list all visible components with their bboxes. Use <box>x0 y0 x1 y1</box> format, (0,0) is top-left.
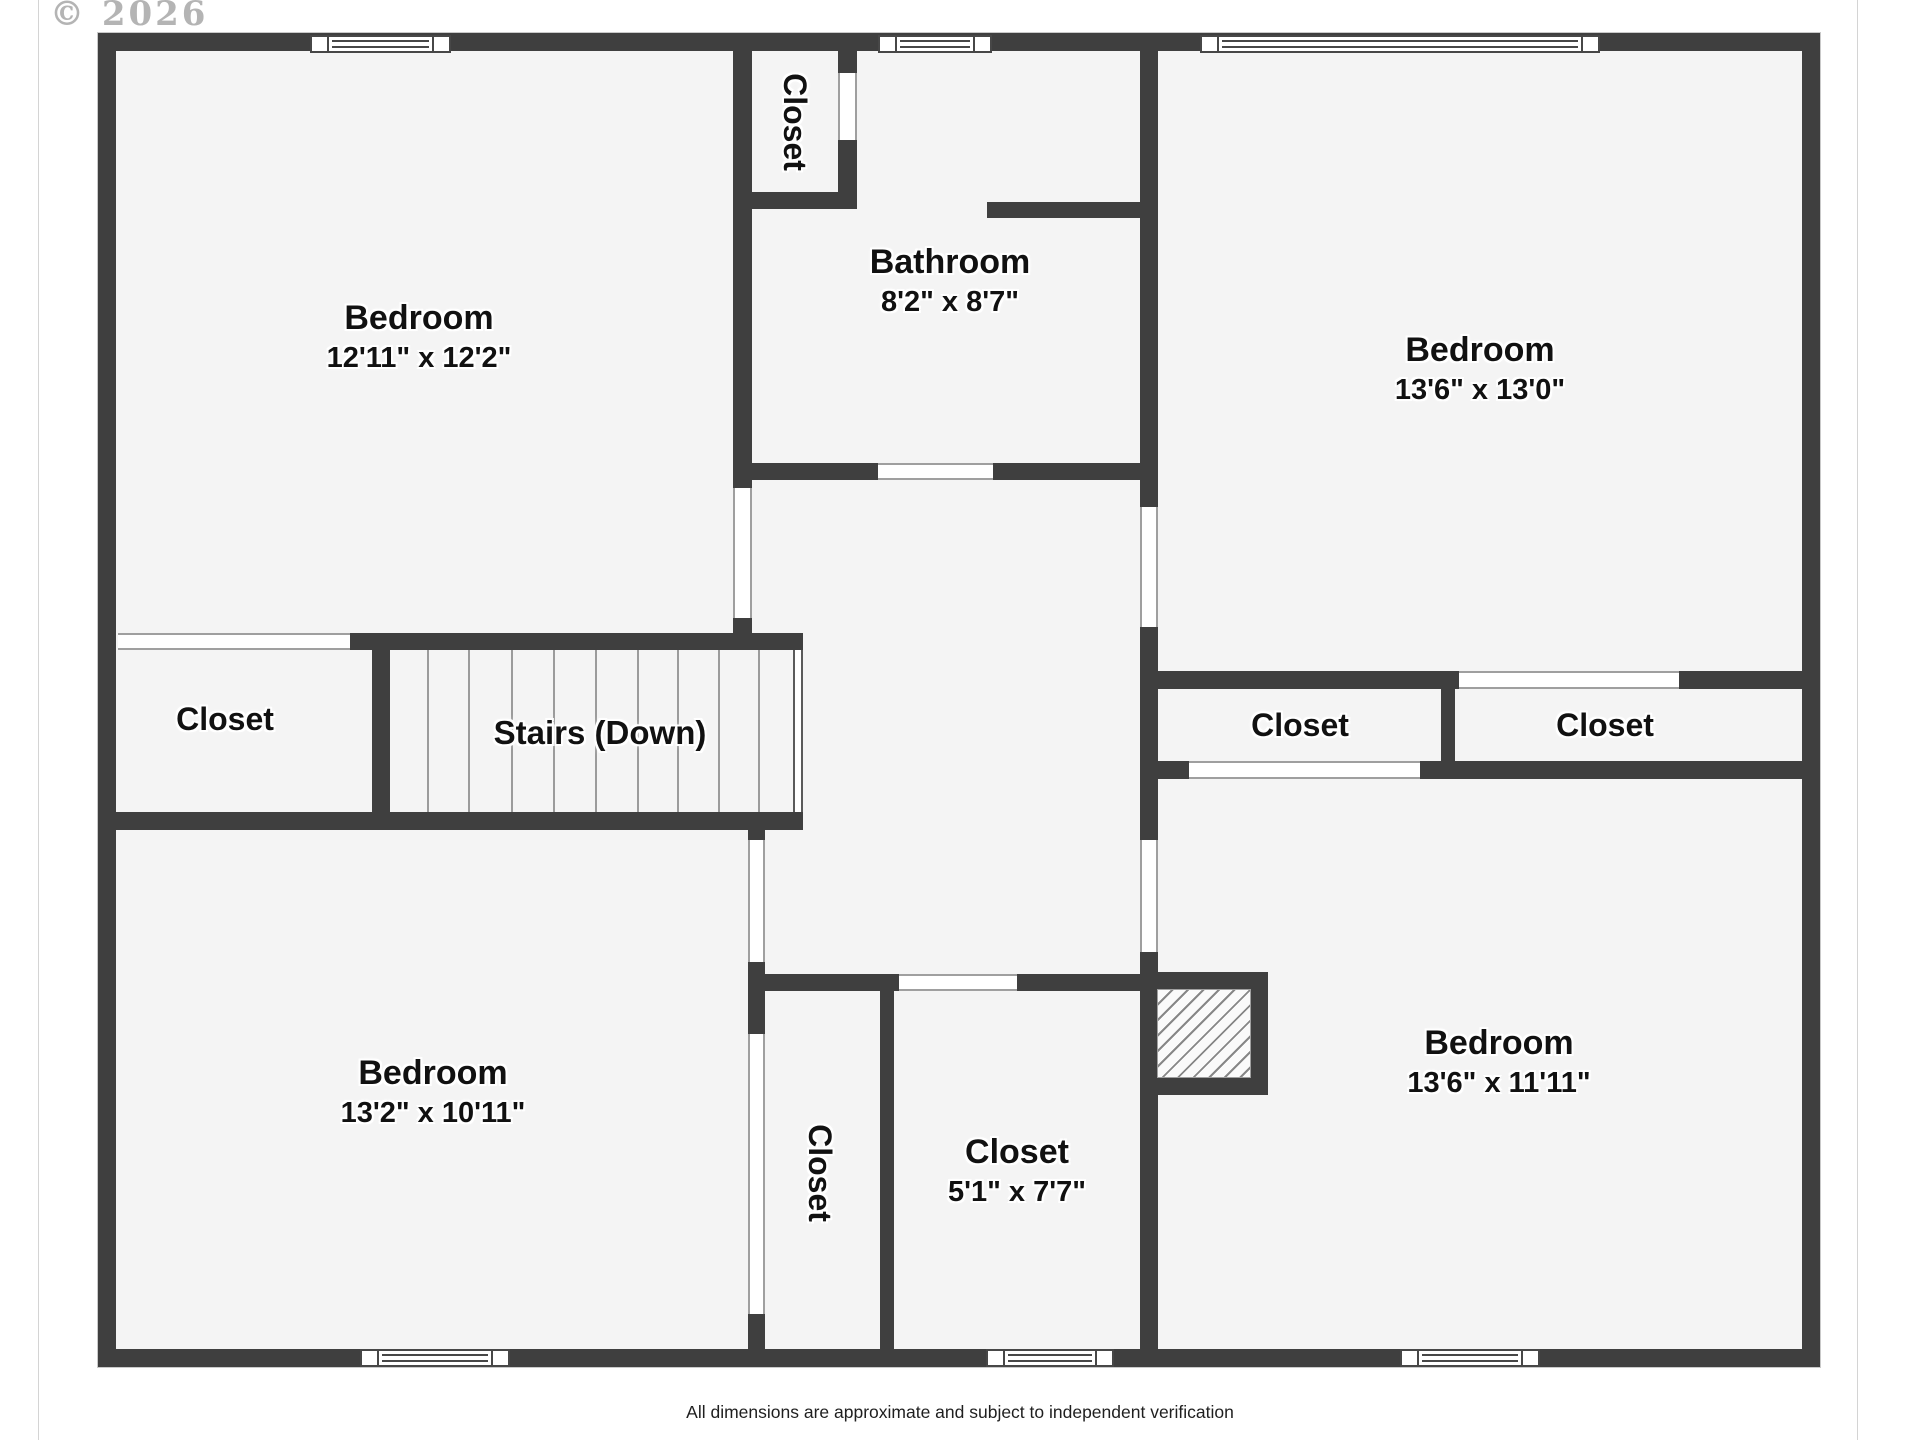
wall-hall-south-east <box>1017 974 1140 991</box>
wall-bathroom-south-east <box>993 463 1158 480</box>
wall-outer-right <box>1802 33 1820 1367</box>
room-name: Closet <box>817 1132 1217 1172</box>
wall-closetsR-bottom-west <box>1158 761 1189 779</box>
wall-bathroom-south-west <box>752 463 878 480</box>
wall-hatch-top <box>1158 972 1268 990</box>
room-dims: 12'11" x 12'2" <box>219 338 619 378</box>
wall-stairsrow-bottom <box>98 812 803 830</box>
room-dims: 13'6" x 11'11" <box>1299 1063 1699 1103</box>
door-opening-bedroomTR <box>1140 507 1158 627</box>
room-name: Bedroom <box>1280 330 1680 370</box>
room-label-bathroom: Bathroom 8'2" x 8'7" <box>750 242 1150 322</box>
wall-closetsR-bottom-east <box>1420 761 1802 779</box>
room-name: Bathroom <box>750 242 1150 282</box>
wall-bedroomBL-east-stub-top <box>748 830 765 840</box>
wall-outer-left <box>98 33 116 1367</box>
room-dims: 13'6" x 13'0" <box>1280 370 1680 410</box>
window-top-bedroomTR <box>1200 35 1600 53</box>
window-bottom-bedroomBR <box>1400 1349 1540 1367</box>
wall-closetsR-top-east <box>1679 671 1802 689</box>
window-top-bathroom <box>878 35 992 53</box>
room-label-closet-mid-left: Closet <box>25 701 425 737</box>
wall-hatch-bottom <box>1158 1077 1268 1095</box>
room-name: Bedroom <box>233 1053 633 1093</box>
door-opening-bedroomBL <box>748 840 765 962</box>
disclaimer-text: All dimensions are approximate and subje… <box>0 1402 1920 1423</box>
wall-hall-south-west <box>765 974 899 991</box>
door-opening-closetR2 <box>1459 671 1679 689</box>
window-top-bedroomTL <box>310 35 451 53</box>
room-name: Bedroom <box>219 298 619 338</box>
hatched-fixture <box>1158 990 1250 1077</box>
door-opening-closetMidLeft <box>118 633 350 650</box>
window-bottom-bedroomBL <box>360 1349 510 1367</box>
door-opening-closetBottom <box>899 974 1017 991</box>
room-name: Bedroom <box>1299 1023 1699 1063</box>
room-label-closet-right-2: Closet <box>1405 707 1805 743</box>
door-opening-closetTop <box>838 73 857 140</box>
copyright-watermark: © 2026 <box>50 0 208 34</box>
room-label-closet-top: Closet <box>773 0 817 272</box>
room-label-bedroom-top-right: Bedroom 13'6" x 13'0" <box>1280 330 1680 410</box>
door-opening-bathroom <box>878 463 993 480</box>
room-label-closet-bottom: Closet 5'1" x 7'7" <box>817 1132 1217 1212</box>
room-label-bedroom-bottom-left: Bedroom 13'2" x 10'11" <box>233 1053 633 1133</box>
wall-closetTop-east-upper <box>838 51 857 73</box>
wall-bathroom-nook-stub <box>987 202 1158 218</box>
wall-closetsR-top-west <box>1158 671 1459 689</box>
door-opening-closetR1 <box>1189 761 1420 779</box>
wall-bedroomBL-east-stub-bottom <box>748 1314 765 1349</box>
wall-closetTop-east-lower <box>838 140 857 192</box>
window-bottom-closet <box>986 1349 1114 1367</box>
wall-bedroomBL-east-mid <box>748 962 765 1034</box>
room-label-bedroom-bottom-right: Bedroom 13'6" x 11'11" <box>1299 1023 1699 1103</box>
wall-outer-bottom <box>98 1349 1820 1367</box>
door-opening-closetVertical <box>748 1034 765 1314</box>
door-opening-bedroomTL <box>733 488 752 618</box>
floorplan-page: © 2026 <box>0 0 1920 1440</box>
room-label-stairs: Stairs (Down) <box>390 714 810 752</box>
room-label-bedroom-top-left: Bedroom 12'11" x 12'2" <box>219 298 619 378</box>
room-dims: 5'1" x 7'7" <box>817 1172 1217 1212</box>
wall-stairsrow-top <box>350 633 803 650</box>
room-dims: 13'2" x 10'11" <box>233 1093 633 1133</box>
room-dims: 8'2" x 8'7" <box>750 282 1150 322</box>
door-opening-bedroomBR <box>1140 840 1158 952</box>
